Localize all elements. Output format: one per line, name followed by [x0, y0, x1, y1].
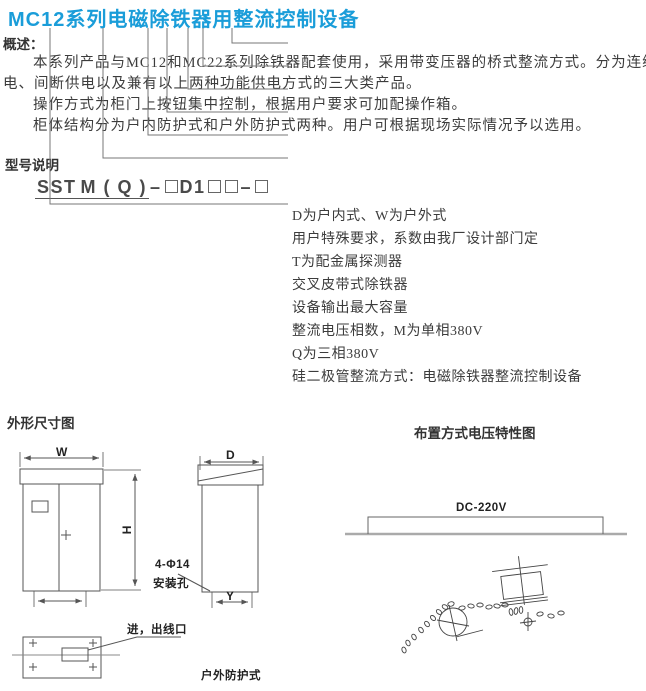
foot-dim-label: Y [226, 589, 234, 603]
model-label: 交叉皮带式除铁器 [292, 274, 408, 294]
drop-point-mark [520, 612, 536, 631]
height-dim-label: H [119, 526, 133, 535]
model-label: 设备输出最大容量 [292, 297, 408, 317]
document-page: MC12系列电磁除铁器用整流控制设备 概述： 本系列产品与MC12和MC22系列… [0, 0, 646, 691]
width-dim-label: W [56, 445, 67, 459]
dimension-drawing-heading: 外形尺寸图 [7, 412, 75, 432]
depth-dim-label: D [226, 448, 235, 462]
voltage-pulse-drawing [345, 517, 627, 534]
plan-view-drawing [12, 637, 181, 678]
line-art [0, 435, 646, 691]
outdoor-type-caption: 户外防护式 [201, 667, 261, 683]
model-label: 用户特殊要求，系数由我厂设计部门定 [292, 228, 539, 248]
holes-note-line2: 安装孔 [153, 575, 189, 591]
model-label: T为配金属探测器 [292, 251, 403, 271]
model-label: 整流电压相数，M为单相380V [292, 320, 483, 340]
model-label: 硅二极管整流方式：电磁除铁器整流控制设备 [292, 366, 582, 386]
model-label: D为户内式、W为户外式 [292, 205, 447, 225]
model-leader-lines [0, 0, 646, 240]
model-label: Q为三相380V [292, 343, 379, 363]
magnet-box [491, 553, 553, 608]
material-lumps [401, 601, 564, 653]
port-label: 进，出线口 [127, 621, 187, 637]
dc-voltage-label: DC-220V [456, 502, 507, 514]
conveyor-sketch [401, 553, 564, 654]
holes-note-line1: 4-Φ14 [155, 559, 190, 571]
side-view-drawing [178, 456, 263, 608]
